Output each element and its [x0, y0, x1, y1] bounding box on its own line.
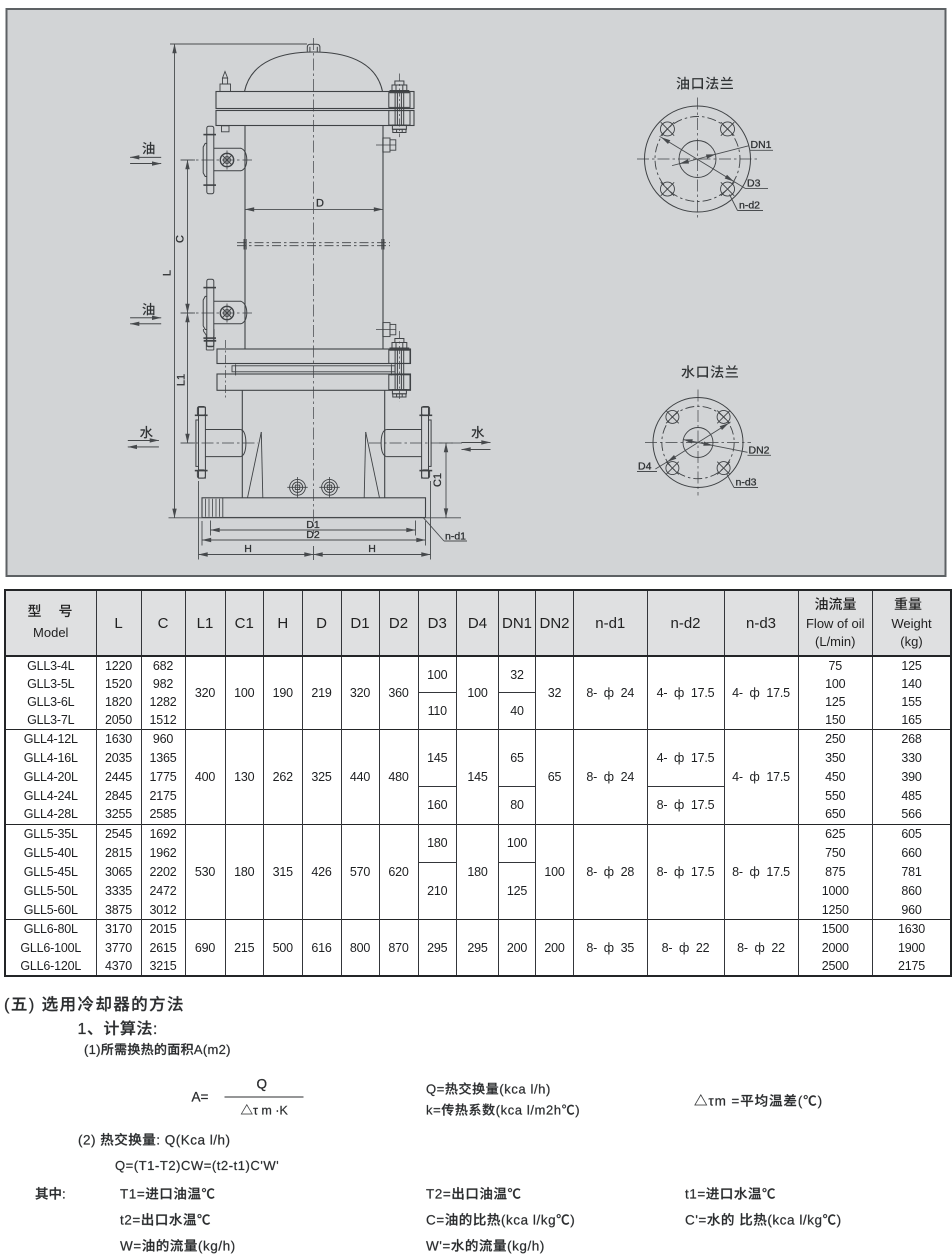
svg-text:C: C — [175, 235, 187, 243]
svg-text:L1: L1 — [176, 374, 188, 386]
svg-text:Q: Q — [257, 1077, 268, 1092]
svg-text:DN2: DN2 — [749, 444, 770, 456]
svg-text:n-d2: n-d2 — [739, 200, 760, 212]
svg-text:D2: D2 — [306, 529, 320, 541]
svg-text:H: H — [368, 543, 376, 555]
svg-text:A=: A= — [192, 1090, 209, 1105]
svg-text:D: D — [316, 198, 324, 210]
svg-text:DN1: DN1 — [751, 139, 772, 151]
svg-text:D4: D4 — [638, 460, 652, 472]
svg-text:H: H — [244, 543, 252, 555]
svg-text:n-d1: n-d1 — [445, 530, 466, 542]
svg-text:D3: D3 — [747, 178, 761, 190]
svg-text:C1: C1 — [432, 473, 444, 487]
svg-text:L: L — [162, 270, 174, 276]
svg-text:n-d3: n-d3 — [736, 477, 757, 489]
